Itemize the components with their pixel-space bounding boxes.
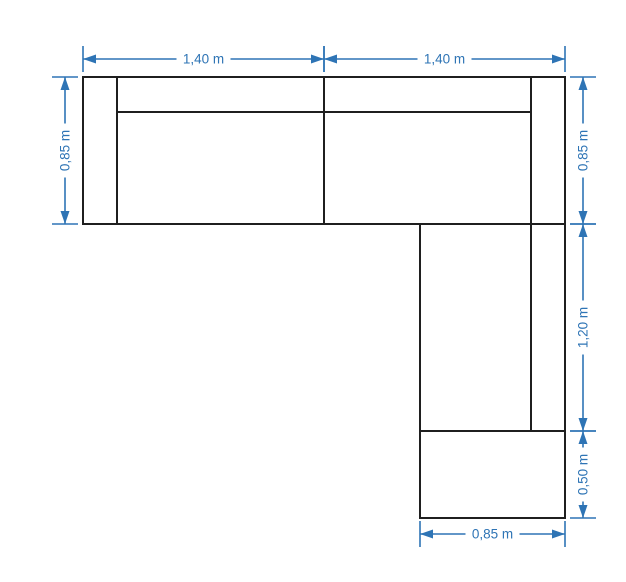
dimension-arrowhead xyxy=(324,55,337,64)
chaise-body xyxy=(420,224,565,431)
dimension-arrowhead xyxy=(552,55,565,64)
dimension-label: 0,85 m xyxy=(472,527,513,542)
dimension-arrowhead xyxy=(83,55,96,64)
dimension-label: 1,40 m xyxy=(424,52,465,67)
floor-plan-canvas: 1,40 m1,40 m0,85 m0,85 m1,20 m0,50 m0,85… xyxy=(0,0,626,582)
dimension-arrowhead xyxy=(61,77,70,90)
dimension-arrowhead xyxy=(552,530,565,539)
dimension-arrowhead xyxy=(420,530,433,539)
dimension-right-upper: 0,85 m xyxy=(570,77,596,224)
dimension-label: 0,50 m xyxy=(576,454,591,495)
dimension-arrowhead xyxy=(579,505,588,518)
dimension-arrowhead xyxy=(579,418,588,431)
dimension-arrowhead xyxy=(579,77,588,90)
dimension-label: 1,20 m xyxy=(576,307,591,348)
dimension-label: 1,40 m xyxy=(183,52,224,67)
dimension-arrowhead xyxy=(61,211,70,224)
dimension-right-middle: 1,20 m xyxy=(570,224,596,431)
dimension-arrowhead xyxy=(579,211,588,224)
dimension-right-lower: 0,50 m xyxy=(570,431,596,518)
dimension-label: 0,85 m xyxy=(58,130,73,171)
dimension-label: 0,85 m xyxy=(576,130,591,171)
sofa-outline xyxy=(83,77,565,518)
dimension-bottom: 0,85 m xyxy=(420,521,565,547)
dimension-left: 0,85 m xyxy=(52,77,78,224)
dimension-arrowhead xyxy=(311,55,324,64)
sofa-floor-plan: 1,40 m1,40 m0,85 m0,85 m1,20 m0,50 m0,85… xyxy=(0,0,626,582)
ottoman-body xyxy=(420,431,565,518)
dimension-top-left: 1,40 m xyxy=(83,46,324,72)
dimension-arrowhead xyxy=(579,431,588,444)
dimension-top-right: 1,40 m xyxy=(324,46,565,72)
dimension-arrowhead xyxy=(579,224,588,237)
